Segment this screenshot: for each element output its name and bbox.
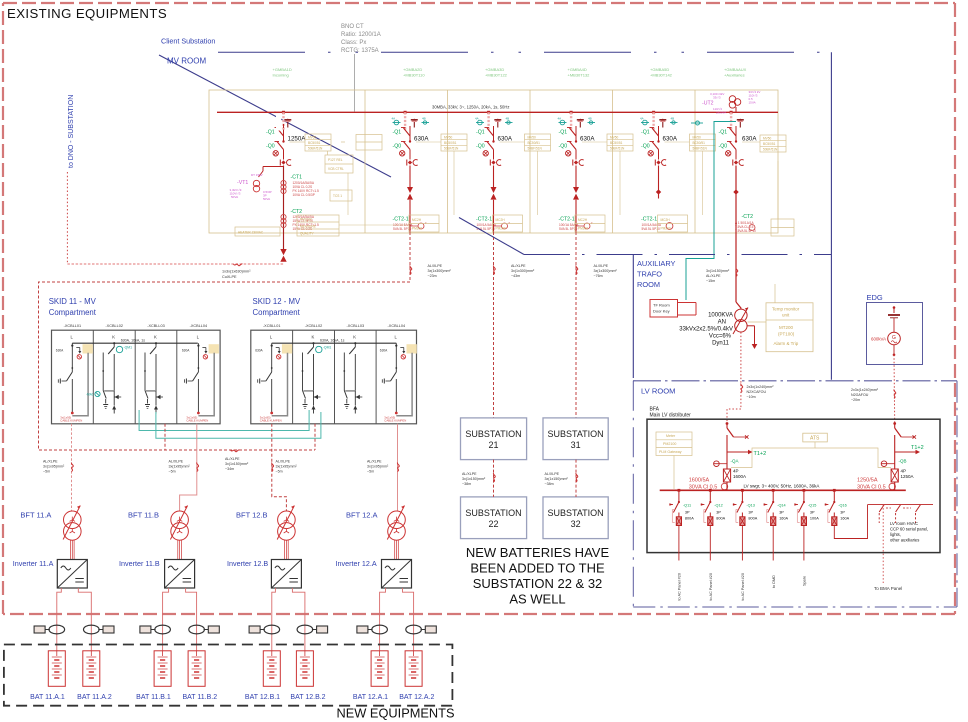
svg-text:Compartment: Compartment	[253, 308, 301, 317]
svg-text:CuXLPE: CuXLPE	[222, 275, 237, 279]
svg-text:-Q16: -Q16	[838, 504, 846, 508]
svg-text:AL/XLPE: AL/XLPE	[225, 457, 240, 461]
svg-text:Compartment: Compartment	[49, 308, 97, 317]
svg-text:50VA: 50VA	[263, 197, 270, 201]
svg-text:160A: 160A	[840, 517, 849, 521]
svg-text:-QB: -QB	[899, 459, 907, 464]
svg-text:-Q13: -Q13	[746, 504, 754, 508]
svg-text:31: 31	[571, 440, 581, 450]
svg-text:+GMBA5D: +GMBA5D	[650, 67, 669, 72]
svg-text:Alarm & Trip: Alarm & Trip	[774, 341, 799, 346]
svg-text:Inverter 11.B: Inverter 11.B	[119, 559, 160, 568]
svg-text:3P: 3P	[810, 511, 815, 515]
svg-text:-XCBLL03: -XCBLL03	[347, 324, 365, 328]
svg-text:50VA: 50VA	[231, 195, 238, 199]
svg-text:BAT 12.B.1: BAT 12.B.1	[245, 694, 280, 701]
svg-text:33kVx2x2.5%/0.4kV: 33kVx2x2.5%/0.4kV	[679, 327, 733, 333]
svg-text:32: 32	[571, 519, 581, 529]
svg-text:AL/XLPE: AL/XLPE	[276, 460, 291, 464]
svg-text:BAT 11.B.2: BAT 11.B.2	[182, 694, 217, 701]
svg-text:3x(1x150)mm²: 3x(1x150)mm²	[225, 462, 249, 466]
svg-text:VCB CTRL: VCB CTRL	[328, 167, 344, 171]
svg-text:-CT2-1: -CT2-1	[641, 217, 657, 223]
svg-text:+GMBA4D: +GMBA4D	[568, 67, 587, 72]
svg-text:lights,: lights,	[890, 532, 901, 537]
svg-text:Door Key: Door Key	[653, 309, 670, 314]
svg-text:3P: 3P	[840, 511, 845, 515]
svg-text:AS WELL: AS WELL	[509, 592, 565, 607]
svg-text:630A, 16kA, 1s: 630A, 16kA, 1s	[320, 339, 345, 343]
svg-text:+MB30T122: +MB30T122	[485, 73, 508, 78]
svg-text:3x(1x300)mm²: 3x(1x300)mm²	[428, 269, 452, 273]
svg-text:~34m: ~34m	[225, 467, 234, 471]
svg-text:AN: AN	[718, 320, 726, 326]
svg-text:+Auxiliaries: +Auxiliaries	[724, 73, 745, 78]
svg-text:-CT1: -CT1	[291, 175, 303, 181]
svg-text:+MB30T110: +MB30T110	[403, 73, 425, 78]
svg-text:LV room HVAC: LV room HVAC	[890, 521, 918, 526]
svg-text:BFT 11.A: BFT 11.A	[20, 511, 51, 520]
svg-text:Incoming: Incoming	[273, 73, 289, 78]
svg-text:1600A: 1600A	[733, 474, 746, 479]
svg-text:Temp monitor: Temp monitor	[772, 307, 800, 312]
svg-text:1600/5A: 1600/5A	[689, 478, 710, 484]
svg-text:Inverter 11.A: Inverter 11.A	[13, 559, 54, 568]
svg-text:AL/XLPE: AL/XLPE	[511, 264, 526, 268]
svg-text:Vcc=6%: Vcc=6%	[709, 334, 732, 340]
svg-text:4P: 4P	[733, 469, 739, 474]
svg-text:-Q12: -Q12	[714, 504, 722, 508]
svg-text:~20m: ~20m	[851, 398, 860, 402]
svg-text:T1+2: T1+2	[911, 445, 924, 451]
svg-text:to AC Panel #20: to AC Panel #20	[741, 573, 745, 600]
svg-text:3P: 3P	[685, 511, 690, 515]
svg-text:Main LV distributer: Main LV distributer	[650, 413, 692, 419]
svg-text:TCS 1: TCS 1	[333, 194, 342, 198]
svg-text:SKID 11 - MV: SKID 11 - MV	[49, 297, 97, 306]
svg-text:630A: 630A	[498, 135, 513, 142]
svg-text:BFT 12.B: BFT 12.B	[236, 511, 268, 520]
svg-text:to AC Panel #20: to AC Panel #20	[709, 573, 713, 600]
svg-text:SUBSTATION: SUBSTATION	[548, 508, 604, 518]
svg-text:30MBA, 33kV, 3~, 1250A, 20kA,: 30MBA, 33kV, 3~, 1250A, 20kA, 1s, 50Hz	[432, 105, 509, 110]
svg-text:Inverter 12.B: Inverter 12.B	[227, 559, 268, 568]
svg-text:Class: Px: Class: Px	[341, 40, 366, 46]
svg-text:-QM1: -QM1	[323, 346, 332, 350]
svg-text:10VA CL 0.5/3P: 10VA CL 0.5/3P	[293, 193, 315, 197]
svg-text:BAT 11.A.2: BAT 11.A.2	[77, 694, 112, 701]
svg-text:~15m: ~15m	[706, 279, 715, 283]
svg-text:800A: 800A	[685, 517, 694, 521]
svg-text:Spare: Spare	[803, 576, 807, 586]
svg-text:LV ROOM: LV ROOM	[641, 387, 675, 396]
svg-text:-VT1: -VT1	[237, 180, 248, 186]
svg-text:15VA: 15VA	[749, 101, 756, 105]
svg-text:21: 21	[488, 440, 498, 450]
svg-text:SUBSTATION 22 & 32: SUBSTATION 22 & 32	[473, 576, 603, 591]
svg-text:BAT 11.B.1: BAT 11.B.1	[136, 694, 171, 701]
svg-text:3x(1x150)mm²: 3x(1x150)mm²	[706, 269, 730, 273]
svg-text:EXISTING EQUIPMENTS: EXISTING EQUIPMENTS	[7, 6, 167, 21]
svg-text:other auxiliaries: other auxiliaries	[890, 538, 919, 543]
svg-text:-MA1: -MA1	[86, 393, 94, 397]
svg-text:Meter: Meter	[666, 434, 676, 438]
svg-text:3P: 3P	[748, 511, 753, 515]
svg-text:2x50VA: 2x50VA	[716, 111, 726, 115]
svg-text:+GMBA2D: +GMBA2D	[403, 67, 422, 72]
svg-text:800A: 800A	[716, 517, 725, 521]
svg-text:AL/XLPE: AL/XLPE	[545, 472, 560, 476]
svg-text:AL/XLPE: AL/XLPE	[594, 264, 609, 268]
svg-text:MT200: MT200	[779, 325, 794, 330]
svg-text:HEATER 230VAC: HEATER 230VAC	[238, 231, 264, 235]
svg-text:-CT2: -CT2	[742, 214, 754, 220]
svg-text:1250/5A: 1250/5A	[857, 478, 878, 484]
svg-text:-XCBLL04: -XCBLL04	[388, 324, 406, 328]
svg-text:Inverter 12.A: Inverter 12.A	[336, 559, 377, 568]
svg-text:BAT 12.A.1: BAT 12.A.1	[353, 694, 388, 701]
svg-text:1250A: 1250A	[901, 474, 914, 479]
svg-text:NEW EQUIPMENTS: NEW EQUIPMENTS	[337, 706, 455, 721]
svg-text:PM2100: PM2100	[663, 442, 676, 446]
svg-text:~5m: ~5m	[169, 470, 176, 474]
svg-text:N2GAFOU: N2GAFOU	[851, 393, 869, 397]
svg-text:AL/XLPE: AL/XLPE	[43, 460, 58, 464]
svg-text:BAT 11.A.1: BAT 11.A.1	[30, 694, 65, 701]
svg-text:~10m: ~10m	[747, 395, 756, 399]
svg-text:RCTG: 1375A: RCTG: 1375A	[341, 48, 379, 54]
svg-text:PLM Gateway: PLM Gateway	[659, 450, 682, 454]
svg-text:630A: 630A	[663, 135, 678, 142]
svg-text:~5m: ~5m	[276, 470, 283, 474]
svg-text:+MB30T132: +MB30T132	[568, 73, 591, 78]
svg-text:ATS: ATS	[810, 436, 820, 442]
svg-text:SKID 12 - MV: SKID 12 - MV	[253, 297, 301, 306]
svg-text:-XCBLL01: -XCBLL01	[263, 324, 281, 328]
svg-text:1250A: 1250A	[288, 135, 307, 142]
svg-text:~5m: ~5m	[43, 470, 50, 474]
svg-text:BNO CT: BNO CT	[341, 24, 364, 30]
svg-text:3P: 3P	[716, 511, 721, 515]
svg-text:7.5VA 5L 5P10: 7.5VA 5L 5P10	[735, 229, 756, 233]
svg-text:-XCBLL02: -XCBLL02	[105, 324, 123, 328]
svg-text:+GMBA3D: +GMBA3D	[485, 67, 504, 72]
svg-text:BAT 12.A.2: BAT 12.A.2	[399, 694, 434, 701]
svg-text:MEASURE: MEASURE	[300, 225, 316, 229]
svg-text:To BMA Panel: To BMA Panel	[874, 586, 902, 591]
svg-text:2x3x(1x240)mm²: 2x3x(1x240)mm²	[747, 385, 775, 389]
svg-text:-XCBLL04: -XCBLL04	[190, 324, 208, 328]
svg-text:630A, 16kA, 1s: 630A, 16kA, 1s	[121, 339, 146, 343]
svg-text:600kVA: 600kVA	[871, 337, 886, 342]
svg-text:~76m: ~76m	[594, 274, 603, 278]
svg-text:1x3x(1x630)mm²: 1x3x(1x630)mm²	[222, 270, 251, 274]
svg-text:-Q11: -Q11	[683, 504, 691, 508]
svg-text:-XCBLL02: -XCBLL02	[305, 324, 323, 328]
svg-text:-QA: -QA	[731, 459, 739, 464]
svg-text:4P: 4P	[901, 469, 907, 474]
svg-text:Dyn11: Dyn11	[712, 341, 730, 347]
svg-text:3x(1x95)mm²: 3x(1x95)mm²	[367, 465, 389, 469]
svg-text:~38m: ~38m	[462, 482, 471, 486]
svg-text:+GMBAAUX: +GMBAAUX	[724, 67, 747, 72]
svg-text:AL/XLPE: AL/XLPE	[462, 472, 477, 476]
svg-text:3x(1x95)mm²: 3x(1x95)mm²	[276, 465, 298, 469]
svg-text:22: 22	[488, 519, 498, 529]
svg-text:1000KVA: 1000KVA	[708, 313, 733, 319]
svg-text:AUXILIARY: AUXILIARY	[637, 259, 676, 268]
svg-text:3x(1x300)mm²: 3x(1x300)mm²	[511, 269, 535, 273]
svg-text:-XCBLL01: -XCBLL01	[64, 324, 82, 328]
svg-text:3x(1x150)mm²: 3x(1x150)mm²	[545, 477, 569, 481]
svg-text:SUBSTATION: SUBSTATION	[465, 508, 521, 518]
svg-text:~38m: ~38m	[545, 482, 554, 486]
svg-text:CCP 60 serial panel,: CCP 60 serial panel,	[890, 527, 928, 532]
svg-text:Client Substation: Client Substation	[161, 37, 215, 46]
svg-text:160A: 160A	[779, 517, 788, 521]
svg-text:unit: unit	[782, 313, 790, 318]
svg-text:~5m: ~5m	[367, 470, 374, 474]
svg-text:630A: 630A	[414, 135, 429, 142]
svg-text:-QM1: -QM1	[124, 346, 133, 350]
svg-text:BFT 11.B: BFT 11.B	[128, 511, 159, 520]
svg-text:LV swgr, 3~ 400V, 50Hz, 1600A,: LV swgr, 3~ 400V, 50Hz, 1600A, 36kA	[744, 484, 820, 489]
svg-text:T1+2: T1+2	[754, 451, 767, 457]
svg-text:BFT 12.A: BFT 12.A	[346, 511, 378, 520]
svg-text:BEEN ADDED TO THE: BEEN ADDED TO THE	[470, 561, 605, 576]
svg-text:N2XCAFOU: N2XCAFOU	[747, 390, 767, 394]
svg-text:NEW BATTERIES HAVE: NEW BATTERIES HAVE	[466, 545, 610, 560]
svg-text:SUBSTATION: SUBSTATION	[465, 429, 521, 439]
svg-text:AL/XLPE: AL/XLPE	[169, 460, 184, 464]
svg-text:Ratio: 1200/1A: Ratio: 1200/1A	[341, 32, 381, 38]
svg-text:TF Room: TF Room	[653, 303, 670, 308]
svg-text:DT 15kV: DT 15kV	[251, 173, 263, 177]
svg-text:to DMD: to DMD	[772, 575, 776, 588]
svg-text:800A: 800A	[748, 517, 757, 521]
svg-text:~23m: ~23m	[428, 274, 437, 278]
svg-text:MV ROOM: MV ROOM	[167, 57, 206, 66]
svg-text:3P: 3P	[779, 511, 784, 515]
svg-text:630A: 630A	[742, 135, 757, 142]
svg-text:SUBSTATION: SUBSTATION	[548, 429, 604, 439]
svg-text:-Q15: -Q15	[808, 504, 816, 508]
svg-text:-XCBLL03: -XCBLL03	[147, 324, 165, 328]
svg-text:to AC Panel #20: to AC Panel #20	[678, 573, 682, 600]
svg-text:3x(1x95)mm²: 3x(1x95)mm²	[169, 465, 191, 469]
svg-text:~43m: ~43m	[511, 274, 520, 278]
svg-text:QUALITY: QUALITY	[300, 232, 315, 236]
svg-text:AL/XLPE: AL/XLPE	[428, 264, 443, 268]
svg-text:to DNO - SUBSTATION: to DNO - SUBSTATION	[68, 95, 75, 168]
svg-text:3x(1x300)mm²: 3x(1x300)mm²	[594, 269, 618, 273]
svg-text:PM2100: PM2100	[300, 218, 312, 222]
svg-text:BAT 12.B.2: BAT 12.B.2	[290, 694, 325, 701]
svg-text:3x(1x150)mm²: 3x(1x150)mm²	[462, 477, 486, 481]
svg-text:AL/XLPE: AL/XLPE	[706, 274, 721, 278]
svg-text:3x(1x95)mm²: 3x(1x95)mm²	[43, 465, 65, 469]
svg-text:EDG: EDG	[867, 293, 883, 302]
svg-text:-UT2: -UT2	[702, 101, 714, 107]
svg-text:AL/XLPE: AL/XLPE	[367, 460, 382, 464]
svg-text:(PT100): (PT100)	[778, 332, 795, 337]
svg-text:+GMBA1D: +GMBA1D	[273, 67, 292, 72]
svg-text:G: G	[892, 335, 896, 341]
svg-text:-Q14: -Q14	[777, 504, 785, 508]
svg-text:ROOM: ROOM	[637, 280, 660, 289]
svg-text:630A: 630A	[580, 135, 595, 142]
svg-text:+MB30T142: +MB30T142	[650, 73, 673, 78]
svg-text:P127 REL: P127 REL	[328, 158, 343, 162]
svg-text:100A: 100A	[810, 517, 819, 521]
svg-text:2x3x(1x240)mm²: 2x3x(1x240)mm²	[851, 388, 879, 392]
svg-text:TRAFO: TRAFO	[637, 270, 662, 279]
svg-text:33/√3: 33/√3	[713, 96, 721, 100]
